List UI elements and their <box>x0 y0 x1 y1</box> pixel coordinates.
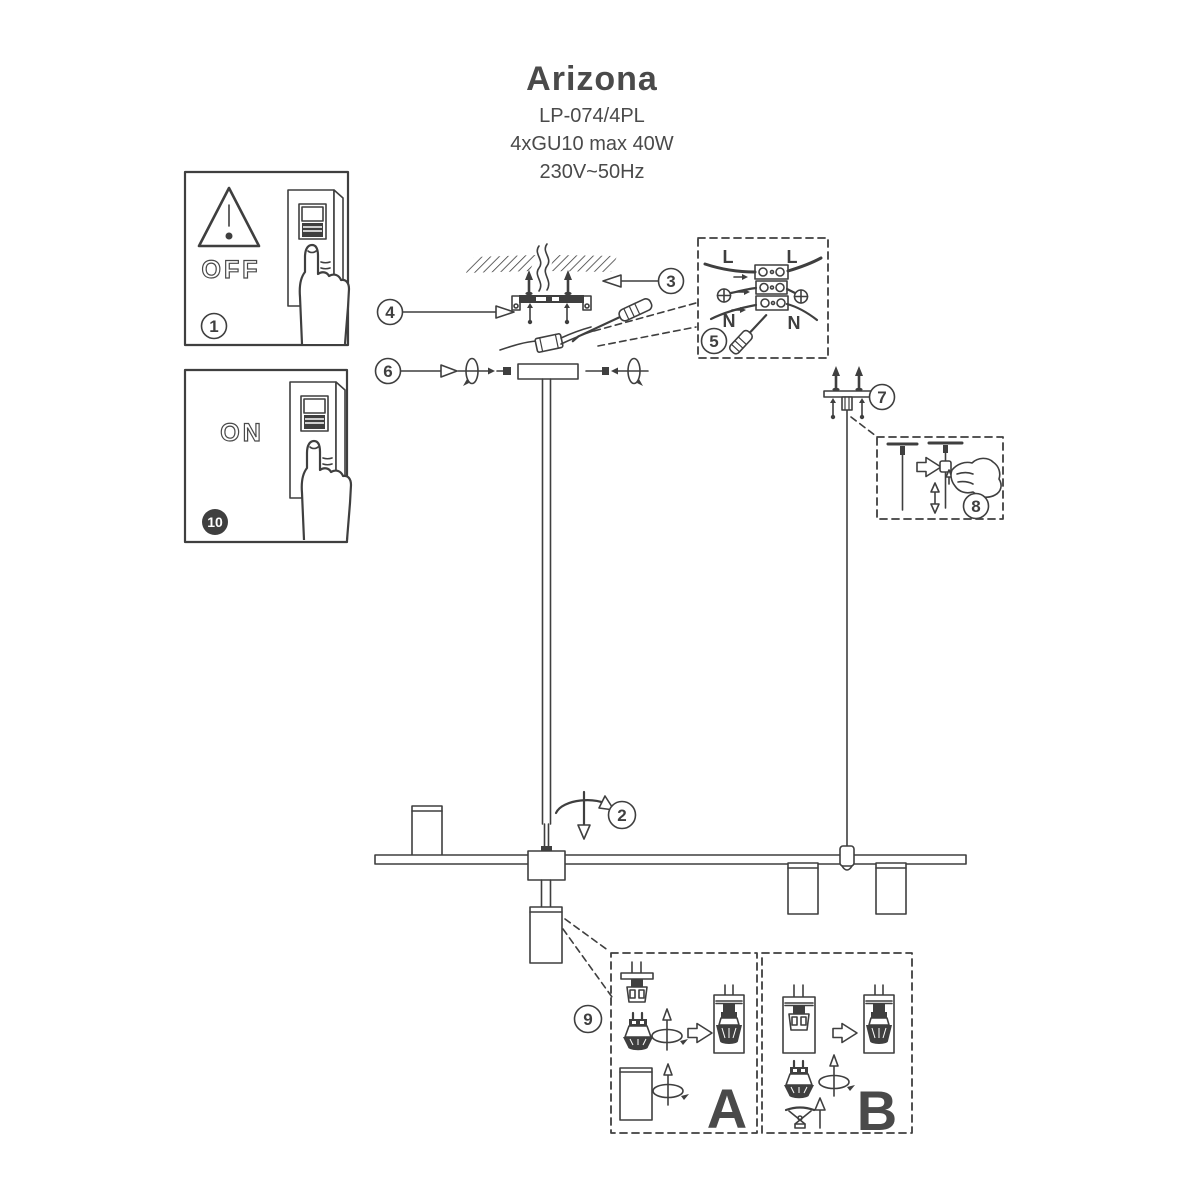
spotlight-down-right1-icon <box>788 863 818 914</box>
canopy-assembly: 6 <box>376 359 649 854</box>
assembled-spotlight-icon <box>714 985 744 1053</box>
step-9-number: 9 <box>583 1010 592 1029</box>
canopy-icon <box>518 364 578 379</box>
block-arrow-icon <box>833 1024 857 1043</box>
step-5-badge: 5 <box>702 329 727 354</box>
gu10-bulb-icon <box>784 1061 814 1098</box>
step-5-number: 5 <box>709 332 718 351</box>
block-arrow-icon <box>688 1024 712 1043</box>
bracket-screw-icon <box>527 303 570 324</box>
center-drop-rod-icon <box>542 880 551 907</box>
variant-b-box: B <box>762 953 912 1142</box>
product-name: Arizona <box>526 60 658 98</box>
step-2-badge: 2 <box>609 802 636 829</box>
terminal-block-icon <box>755 265 788 310</box>
rod-rotation-callout: 2 <box>556 792 636 839</box>
fixture-bar-assembly <box>375 806 966 963</box>
block-arrow-icon <box>917 458 941 477</box>
rotation-arrow-icon <box>556 792 614 839</box>
variant-b-label: B <box>857 1079 897 1142</box>
step-8-badge: 8 <box>964 494 989 519</box>
assembled-spotlight-icon <box>864 985 894 1053</box>
rotation-screw-right-icon <box>611 359 648 387</box>
voltage-spec: 230V~50Hz <box>539 161 644 183</box>
wiring-detail-box: L L N N 5 <box>698 238 828 358</box>
warning-icon <box>199 188 259 246</box>
shade-with-socket-icon <box>783 985 815 1053</box>
wire-adjust-box: 8 <box>877 437 1003 519</box>
step-1-badge: 1 <box>202 314 227 339</box>
step-2-number: 2 <box>617 806 626 825</box>
step-1-number: 1 <box>209 317 218 336</box>
panel-switch-on: ON 10 <box>185 370 351 542</box>
step-10-number: 10 <box>207 514 223 530</box>
step-10-badge: 10 <box>202 509 228 535</box>
spotlight-down-center-icon <box>530 907 562 963</box>
step-7-badge: 7 <box>870 385 895 410</box>
adjusting-hand-icon <box>951 458 1001 497</box>
step-8-number: 8 <box>971 497 980 516</box>
up-down-arrow-icon <box>931 483 939 513</box>
panel-switch-off: OFF 1 <box>185 172 349 345</box>
title-block: Arizona LP-074/4PL 4xGU10 max 40W 230V~5… <box>510 60 674 183</box>
shade-cylinder-icon <box>620 1068 652 1120</box>
gu10-bulb-icon <box>623 1013 653 1050</box>
wire-grip-connector-icon <box>840 846 854 870</box>
step-6-callout: 6 <box>376 359 458 384</box>
mounting-bracket-icon <box>512 295 591 310</box>
step-6-number: 6 <box>383 362 392 381</box>
step-9-badge: 9 <box>575 1006 602 1033</box>
variant-a-box: A <box>611 953 757 1140</box>
step-4-callout: 4 <box>378 300 515 325</box>
ceiling-assembly: 4 3 <box>378 244 697 353</box>
wire-before-icon <box>888 444 917 510</box>
retaining-ring-icon <box>786 1108 814 1129</box>
on-label: ON <box>220 419 264 447</box>
wire-bracket-icon <box>824 366 872 419</box>
neutral-right-label: N <box>788 313 801 333</box>
diagram-canvas: Arizona LP-074/4PL 4xGU10 max 40W 230V~5… <box>0 0 1200 1200</box>
model-number: LP-074/4PL <box>539 105 645 127</box>
rotation-arrow-icon <box>652 1009 688 1050</box>
lamp-install-section: 9 A <box>563 919 912 1142</box>
suspension-rod-icon <box>541 379 552 853</box>
bar-junction-icon <box>528 851 565 880</box>
rotation-screw-left-icon <box>458 359 495 387</box>
step-3-callout: 3 <box>603 269 684 294</box>
instruction-sheet: Arizona LP-074/4PL 4xGU10 max 40W 230V~5… <box>0 0 1200 1200</box>
spotlight-down-right2-icon <box>876 863 906 914</box>
wire-suspension-assembly: 7 <box>824 366 895 870</box>
step-3-number: 3 <box>666 272 675 291</box>
off-label: OFF <box>202 256 261 284</box>
neutral-left-label: N <box>723 311 736 331</box>
ceiling-icon <box>466 255 617 273</box>
step-4-number: 4 <box>385 303 395 322</box>
lamp-spec: 4xGU10 max 40W <box>510 133 674 155</box>
insert-up-arrow-icon <box>815 1098 825 1128</box>
ceiling-wires-icon <box>537 244 548 291</box>
rotation-arrow-icon <box>653 1064 689 1105</box>
rotation-arrow-icon <box>819 1055 855 1096</box>
live-left-label: L <box>723 247 734 267</box>
socket-icon <box>621 962 653 1002</box>
variant-a-label: A <box>707 1077 747 1140</box>
live-right-label: L <box>787 247 798 267</box>
step-7-number: 7 <box>877 388 886 407</box>
mains-cable-icon <box>500 327 593 353</box>
spotlight-up-icon <box>412 806 442 856</box>
